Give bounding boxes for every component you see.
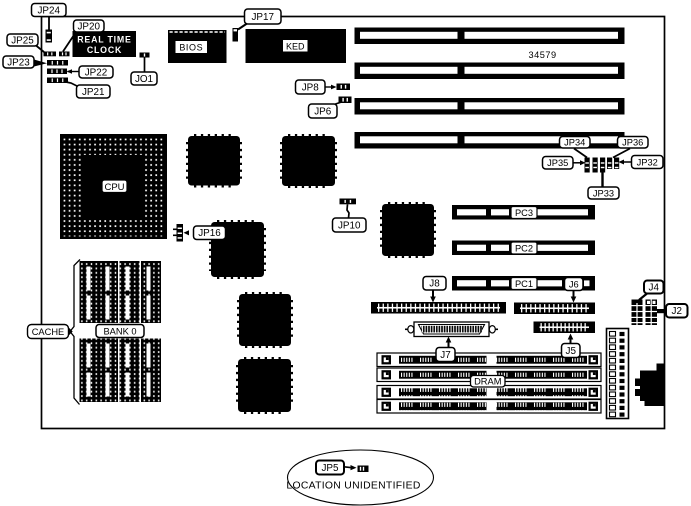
svg-text:JP24: JP24 <box>37 5 60 16</box>
svg-text:BIOS: BIOS <box>179 43 203 53</box>
svg-text:JP35: JP35 <box>547 158 568 168</box>
svg-text:JO1: JO1 <box>135 74 154 85</box>
svg-text:JP8: JP8 <box>302 82 320 93</box>
svg-text:JP5: JP5 <box>321 463 339 474</box>
svg-text:CACHE: CACHE <box>32 327 65 337</box>
svg-text:JP10: JP10 <box>338 220 361 231</box>
svg-text:PC3: PC3 <box>515 208 533 218</box>
svg-text:PC1: PC1 <box>515 279 533 289</box>
svg-text:JP34: JP34 <box>564 138 585 148</box>
svg-text:PC2: PC2 <box>515 243 533 253</box>
svg-text:JP21: JP21 <box>82 87 105 98</box>
svg-text:JP36: JP36 <box>622 138 643 148</box>
svg-text:34579: 34579 <box>529 50 557 60</box>
svg-text:REAL TIME: REAL TIME <box>77 35 131 45</box>
svg-text:J4: J4 <box>649 282 660 293</box>
svg-text:JP22: JP22 <box>85 67 108 78</box>
svg-text:CPU: CPU <box>104 182 124 193</box>
svg-text:KED: KED <box>286 42 305 52</box>
svg-text:CLOCK: CLOCK <box>87 45 122 55</box>
svg-text:JP20: JP20 <box>77 21 100 32</box>
svg-text:JP25: JP25 <box>11 35 34 46</box>
svg-text:J8: J8 <box>429 279 440 290</box>
svg-text:BANK 0: BANK 0 <box>103 326 136 336</box>
svg-text:JP33: JP33 <box>593 188 614 198</box>
svg-text:LOCATION UNIDENTIFIED: LOCATION UNIDENTIFIED <box>286 481 420 492</box>
svg-text:J7: J7 <box>440 350 450 361</box>
svg-text:J2: J2 <box>672 306 682 317</box>
svg-text:JP32: JP32 <box>637 157 658 167</box>
svg-text:J6: J6 <box>569 279 579 289</box>
svg-text:J5: J5 <box>566 346 577 357</box>
svg-text:JP6: JP6 <box>314 106 332 117</box>
svg-text:JP23: JP23 <box>7 57 30 68</box>
svg-text:JP17: JP17 <box>251 12 274 23</box>
svg-text:DRAM: DRAM <box>474 377 501 387</box>
svg-text:JP16: JP16 <box>198 228 221 239</box>
